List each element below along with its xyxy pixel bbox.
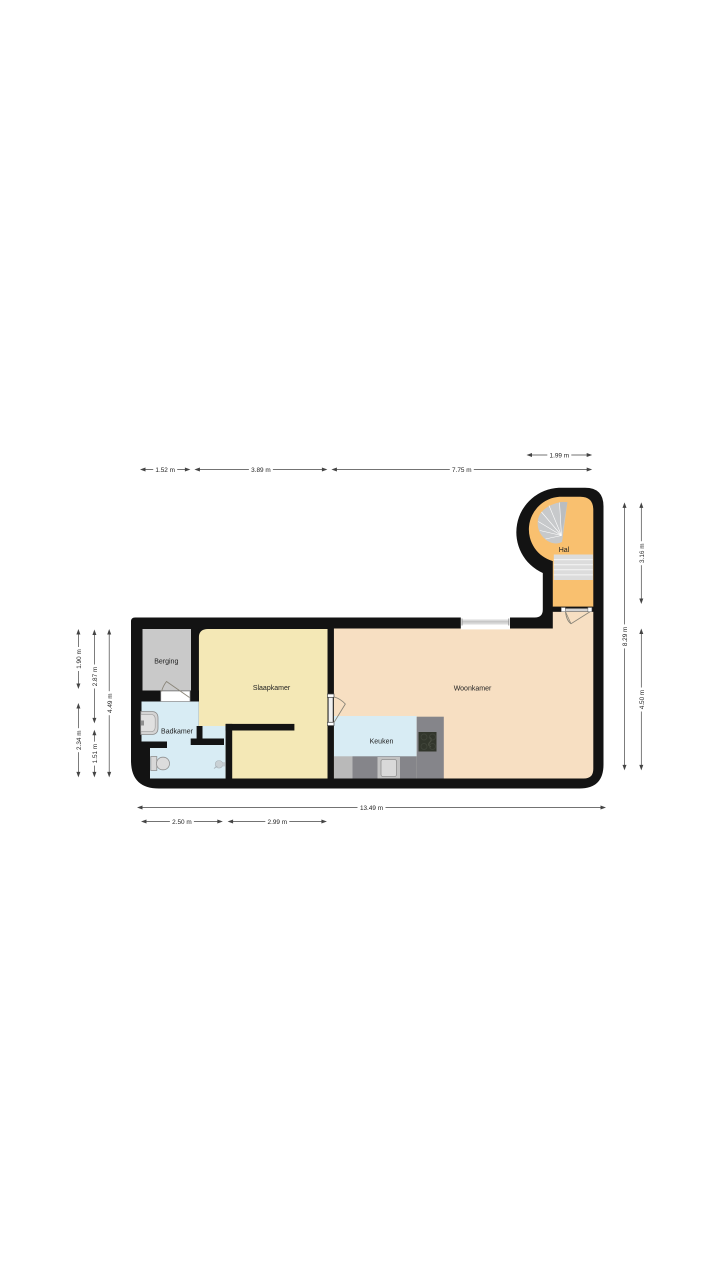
svg-text:Badkamer: Badkamer (161, 728, 194, 735)
svg-text:13.49 m: 13.49 m (360, 805, 383, 812)
svg-text:8.29 m: 8.29 m (622, 627, 629, 647)
svg-text:7.75 m: 7.75 m (452, 467, 472, 474)
svg-text:4.49 m: 4.49 m (107, 693, 114, 713)
svg-text:2.87 m: 2.87 m (92, 667, 99, 687)
svg-text:Berging: Berging (154, 659, 178, 666)
svg-text:2.50 m: 2.50 m (172, 819, 192, 826)
svg-text:Slaapkamer: Slaapkamer (253, 685, 291, 692)
svg-text:1.90 m: 1.90 m (76, 649, 83, 669)
svg-text:3.16 m: 3.16 m (639, 543, 646, 563)
svg-text:Hal: Hal (559, 547, 570, 554)
svg-text:1.52 m: 1.52 m (155, 467, 175, 474)
svg-text:4.50 m: 4.50 m (639, 690, 646, 710)
svg-text:2.34 m: 2.34 m (76, 730, 83, 750)
svg-text:3.89 m: 3.89 m (251, 467, 271, 474)
svg-text:1.51 m: 1.51 m (92, 744, 99, 764)
svg-text:1.99 m: 1.99 m (550, 453, 570, 460)
svg-text:Woonkamer: Woonkamer (454, 686, 492, 693)
svg-text:Keuken: Keuken (370, 739, 394, 746)
svg-text:2.99 m: 2.99 m (268, 819, 288, 826)
